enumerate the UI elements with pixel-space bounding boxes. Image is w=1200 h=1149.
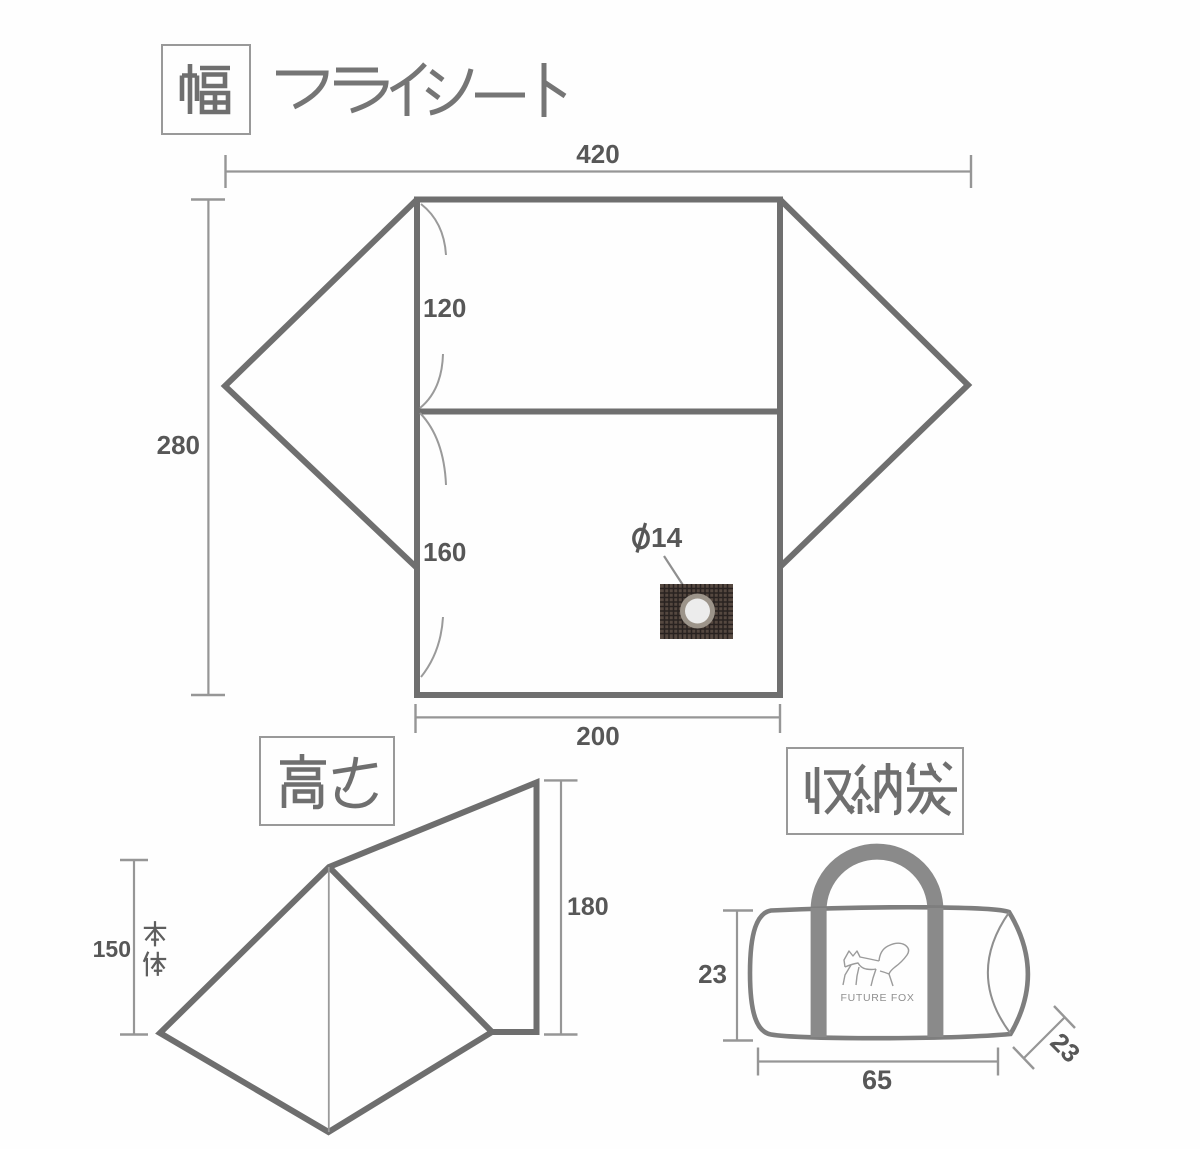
svg-text:FUTURE FOX: FUTURE FOX bbox=[840, 992, 914, 1004]
svg-text:180: 180 bbox=[567, 893, 609, 921]
svg-text:65: 65 bbox=[862, 1065, 892, 1095]
svg-text:160: 160 bbox=[423, 537, 466, 567]
svg-text:14: 14 bbox=[651, 522, 683, 553]
svg-text:120: 120 bbox=[423, 293, 466, 323]
svg-text:200: 200 bbox=[576, 721, 619, 751]
svg-text:23: 23 bbox=[698, 959, 727, 989]
svg-text:150: 150 bbox=[93, 936, 131, 962]
svg-text:420: 420 bbox=[576, 139, 619, 169]
svg-text:280: 280 bbox=[157, 430, 200, 460]
